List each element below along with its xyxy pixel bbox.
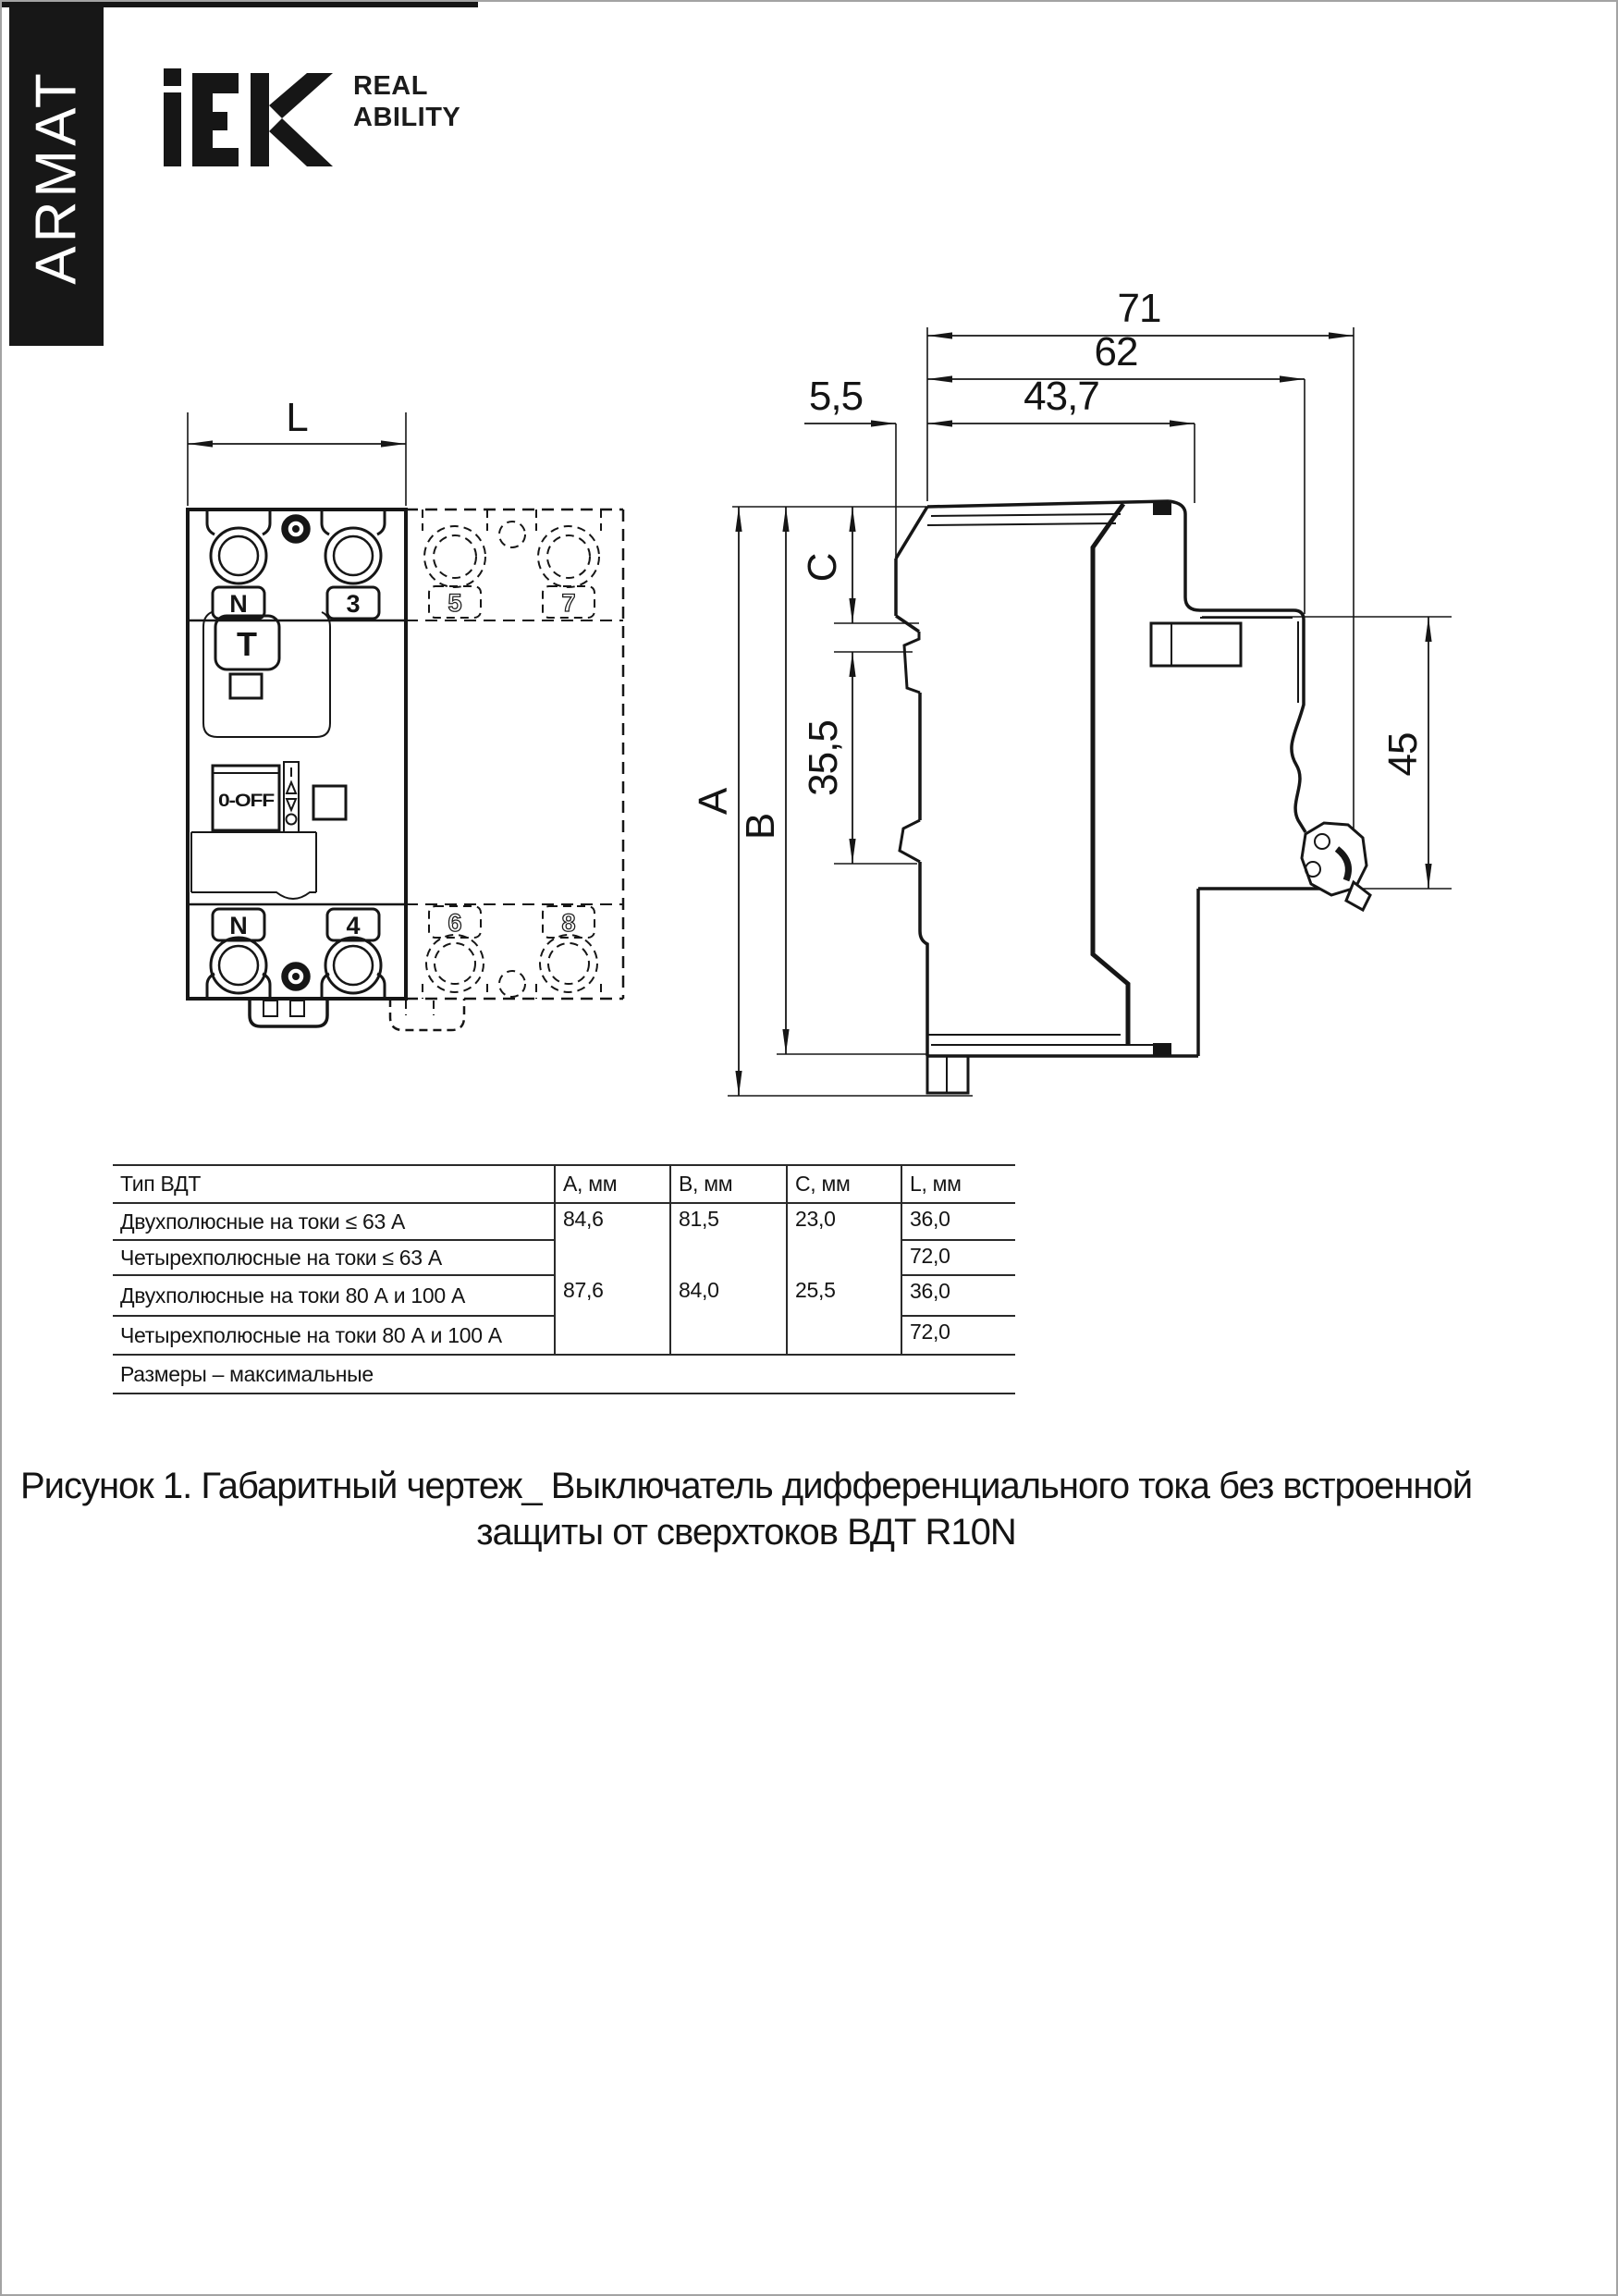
table-row: Двухполюсные на токи ≤ 63 А 84,6 81,5 23… bbox=[113, 1203, 1015, 1240]
side-view-drawing: 71 62 5,5 43,7 A B C 35,5 45 bbox=[695, 270, 1463, 1130]
row-type: Двухполюсные на токи ≤ 63 А bbox=[113, 1203, 555, 1240]
figure-caption-line2: защиты от сверхтоков ВДТ R10N bbox=[2, 1509, 1490, 1555]
col-header-b: В, мм bbox=[670, 1165, 787, 1203]
document-page: ARMAT iEK REAL ABILITY bbox=[0, 0, 1618, 2296]
dim-45: 45 bbox=[1380, 733, 1426, 777]
figure-caption-line1: Рисунок 1. Габаритный чертеж_ Выключател… bbox=[2, 1463, 1490, 1509]
front-view-drawing: L 5 7 6 8 bbox=[108, 390, 700, 1056]
switch-label: 0-OFF bbox=[218, 792, 274, 811]
terminal-label-8: 8 bbox=[561, 909, 575, 937]
dim-71: 71 bbox=[1118, 286, 1161, 331]
value-l: 72,0 bbox=[901, 1316, 1015, 1355]
brand-banner: ARMAT bbox=[9, 7, 104, 346]
dim-A: A bbox=[695, 787, 736, 815]
col-header-c: С, мм bbox=[787, 1165, 901, 1203]
dim-62: 62 bbox=[1095, 329, 1138, 374]
terminal-label-3: 3 bbox=[346, 590, 360, 618]
table-footnote-row: Размеры – максимальные bbox=[113, 1355, 1015, 1394]
dim-C: C bbox=[800, 553, 845, 582]
tagline-real: REAL bbox=[353, 71, 428, 101]
terminal-label-6: 6 bbox=[447, 909, 461, 937]
terminal-label-4: 4 bbox=[346, 912, 360, 939]
value-l: 72,0 bbox=[901, 1240, 1015, 1275]
terminal-label-n-top: N bbox=[229, 590, 248, 618]
value-c: 23,0 bbox=[787, 1203, 901, 1275]
front-dim-L: L bbox=[286, 395, 308, 440]
dimensions-table: Тип ВДТ А, мм В, мм С, мм L, мм Двухполю… bbox=[113, 1164, 1015, 1394]
value-c: 25,5 bbox=[787, 1275, 901, 1355]
value-b: 84,0 bbox=[670, 1275, 787, 1355]
row-type: Двухполюсные на токи 80 А и 100 А bbox=[113, 1275, 555, 1316]
terminal-label-5: 5 bbox=[447, 589, 461, 617]
test-button-label: Т bbox=[237, 625, 257, 663]
value-a: 84,6 bbox=[555, 1203, 670, 1275]
terminal-label-n-bottom: N bbox=[229, 912, 248, 939]
table-footnote: Размеры – максимальные bbox=[113, 1355, 1015, 1394]
table-header-row: Тип ВДТ А, мм В, мм С, мм L, мм bbox=[113, 1165, 1015, 1203]
col-header-l: L, мм bbox=[901, 1165, 1015, 1203]
brand-banner-label: ARMAT bbox=[24, 69, 90, 284]
col-header-type: Тип ВДТ bbox=[113, 1165, 555, 1203]
row-type: Четырехполюсные на токи ≤ 63 А bbox=[113, 1240, 555, 1275]
dim-43-7: 43,7 bbox=[1024, 374, 1099, 419]
value-a: 87,6 bbox=[555, 1275, 670, 1355]
value-b: 81,5 bbox=[670, 1203, 787, 1275]
row-type: Четырехполюсные на токи 80 А и 100 А bbox=[113, 1316, 555, 1355]
col-header-a: А, мм bbox=[555, 1165, 670, 1203]
figure-caption: Рисунок 1. Габаритный чертеж_ Выключател… bbox=[2, 1463, 1490, 1555]
tagline-ability: ABILITY bbox=[353, 103, 460, 132]
dim-5-5: 5,5 bbox=[809, 374, 863, 419]
value-l: 36,0 bbox=[901, 1203, 1015, 1240]
dim-35-5: 35,5 bbox=[801, 720, 846, 796]
iek-logo-glyphs: REAL ABILITY bbox=[157, 46, 712, 185]
table-row: Двухполюсные на токи 80 А и 100 А 87,6 8… bbox=[113, 1275, 1015, 1316]
terminal-label-7: 7 bbox=[561, 589, 575, 617]
iek-logo: iEK REAL ABILITY bbox=[157, 46, 712, 185]
value-l: 36,0 bbox=[901, 1275, 1015, 1316]
dim-B: B bbox=[738, 814, 783, 840]
